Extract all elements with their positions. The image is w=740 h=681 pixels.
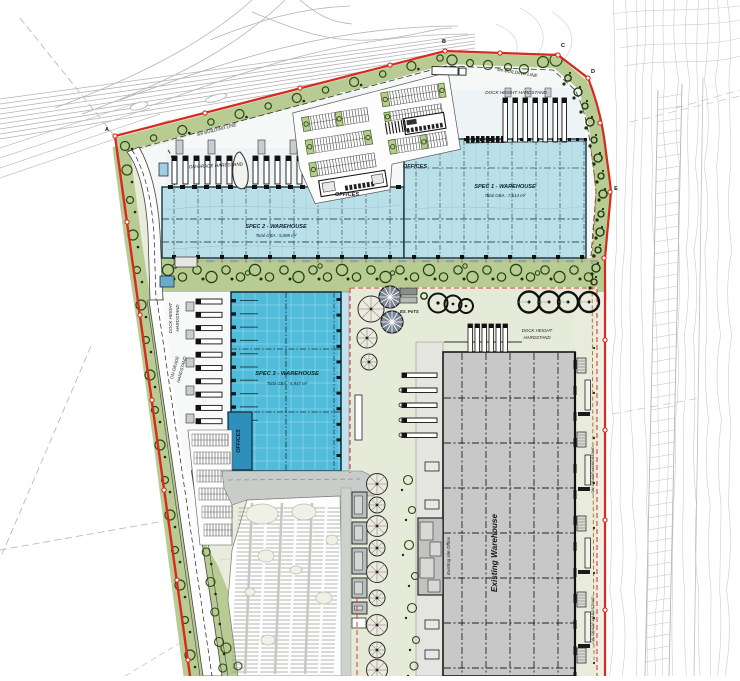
svg-text:HARDSTAND: HARDSTAND <box>524 335 552 340</box>
svg-text:OFFICES: OFFICES <box>335 192 360 198</box>
svg-text:OFFICES: OFFICES <box>236 429 242 453</box>
svg-text:SPEC 1 - WAREHOUSE: SPEC 1 - WAREHOUSE <box>474 184 536 190</box>
svg-text:SPEC 3 - WAREHOUSE: SPEC 3 - WAREHOUSE <box>255 371 320 377</box>
svg-text:DOCK HEIGHT HARDSTAND: DOCK HEIGHT HARDSTAND <box>485 90 547 95</box>
svg-text:ON-GRADE HARDSTAND: ON-GRADE HARDSTAND <box>590 446 595 493</box>
svg-text:B: B <box>442 39 446 45</box>
svg-text:DOCK HEIGHT: DOCK HEIGHT <box>522 328 553 333</box>
svg-text:D: D <box>591 69 595 75</box>
svg-text:DOCK HEIGHT: DOCK HEIGHT <box>168 302 173 333</box>
svg-text:E: E <box>614 186 618 192</box>
svg-text:C: C <box>561 43 565 49</box>
svg-text:Total GBA : 5,089 m²: Total GBA : 5,089 m² <box>256 233 297 238</box>
svg-text:EX. PoTS: EX. PoTS <box>400 309 419 314</box>
svg-text:Existing Warehouse: Existing Warehouse <box>490 514 499 593</box>
svg-text:OFFICES: OFFICES <box>403 164 428 170</box>
svg-text:ON-GRADE HARDSTAND: ON-GRADE HARDSTAND <box>590 596 595 643</box>
svg-text:A: A <box>105 127 109 133</box>
svg-text:Total GBA : 7,614 m²: Total GBA : 7,614 m² <box>485 193 526 198</box>
svg-text:SPEC 2 - WAREHOUSE: SPEC 2 - WAREHOUSE <box>245 224 307 230</box>
svg-text:HARDSTAND: HARDSTAND <box>175 304 180 332</box>
svg-text:Existing site Office: Existing site Office <box>446 537 451 575</box>
svg-text:Total GBA : 5,947 m²: Total GBA : 5,947 m² <box>267 381 308 386</box>
